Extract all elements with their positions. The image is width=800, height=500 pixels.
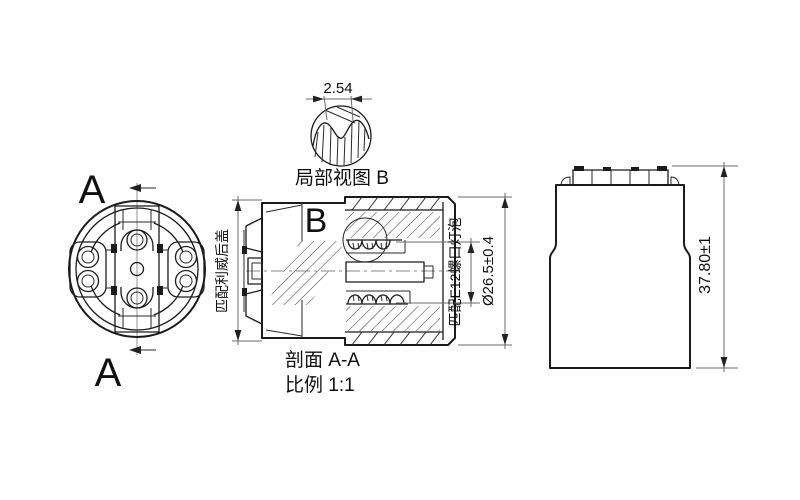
detail-circle: [311, 106, 371, 166]
thread-shading: [315, 107, 365, 166]
note-e12-bulb: 匹配E12螺口灯泡: [447, 218, 463, 327]
dim-left: [232, 196, 262, 345]
section-marker-a-top: A: [79, 168, 106, 212]
section-arrow-bottom: [129, 346, 141, 354]
section-view: [242, 197, 462, 345]
seal-mark: [111, 244, 117, 253]
section-arrow-top: [129, 184, 141, 192]
top-rim: [345, 197, 443, 210]
seal-mark: [111, 286, 117, 295]
drawing-svg: A A 2.54 局部视图 B B 匹配利威后盖 匹配E12螺口灯泡 Ø26.5…: [0, 0, 800, 500]
detail-view-b: [306, 96, 372, 166]
height-dimension-value: 37.80±1: [697, 236, 714, 294]
section-view-title: 剖面 A-A: [285, 349, 360, 371]
detail-view-title: 局部视图 B: [295, 167, 389, 189]
detail-marker-b: B: [305, 202, 328, 240]
pitch-dimension-value: 2.54: [323, 80, 352, 97]
scale-label: 比例 1:1: [285, 374, 355, 396]
bottom-rim: [345, 332, 443, 345]
side-outline: [550, 185, 690, 368]
seal-mark: [157, 244, 163, 253]
dim-e12: [396, 238, 480, 307]
thread-profile: [313, 120, 369, 146]
hatch-top-wall: [346, 212, 440, 238]
hatch-bottom-wall: [346, 306, 440, 331]
diameter-dimension-value: Ø26.5±0.4: [480, 236, 497, 306]
cavity-tongue: [346, 262, 433, 282]
engineering-drawing: A A 2.54 局部视图 B B 匹配利威后盖 匹配E12螺口灯泡 Ø26.5…: [0, 0, 800, 500]
hatch-body: [266, 241, 345, 305]
top-connector-strip: [561, 166, 679, 185]
section-marker-a-bottom: A: [95, 351, 122, 395]
note-rear-cover: 匹配利威后盖: [214, 229, 230, 313]
thread-bottom: [346, 291, 410, 304]
seal-mark: [157, 286, 163, 295]
